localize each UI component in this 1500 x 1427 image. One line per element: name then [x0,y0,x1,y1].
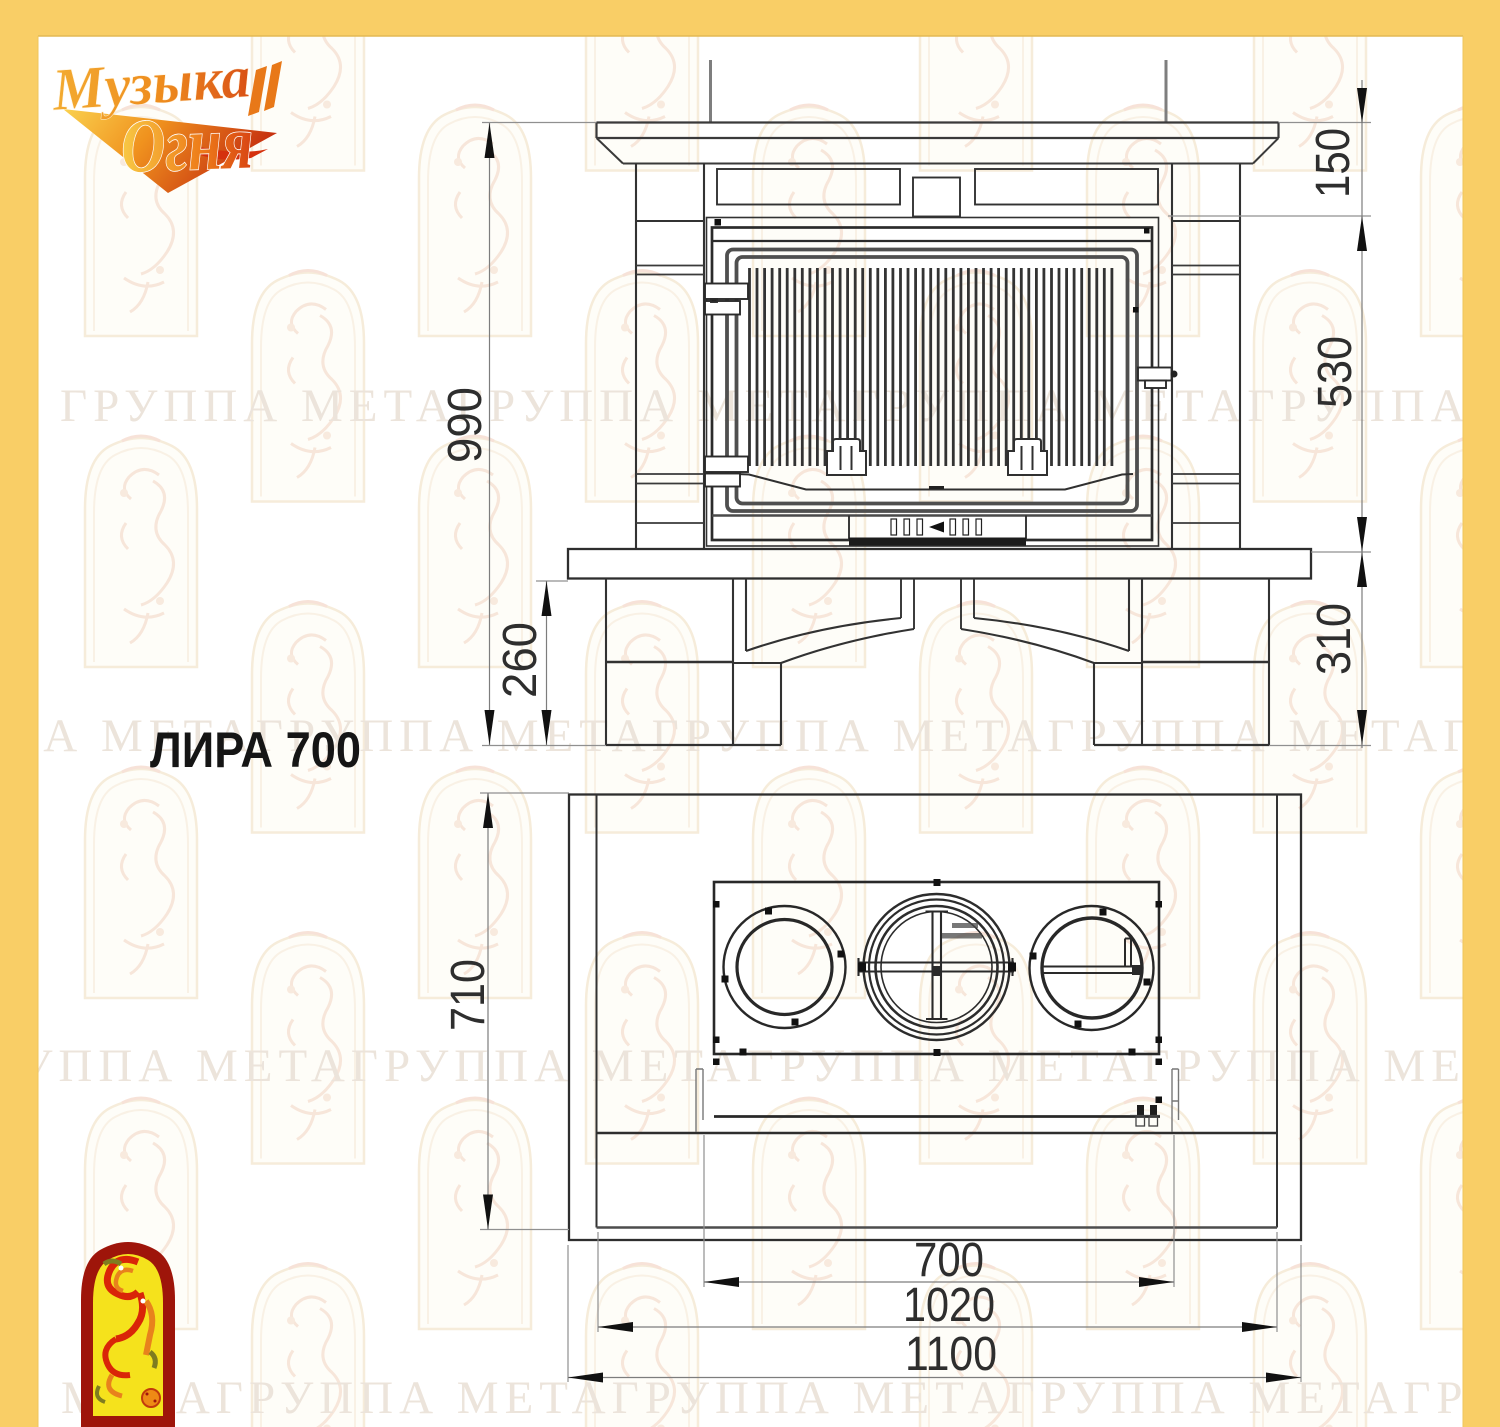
svg-text:Огня: Огня [120,100,255,189]
svg-text:530: 530 [1309,336,1362,408]
svg-text:1020: 1020 [903,1279,995,1332]
svg-text:1100: 1100 [905,1328,997,1381]
svg-text:990: 990 [439,387,492,463]
svg-text:ГРУППА МЕТАГРУППА МЕТАГРУППА М: ГРУППА МЕТАГРУППА МЕТАГРУППА МЕТАГРУППА … [0,1040,1500,1092]
svg-text:260: 260 [494,622,547,698]
svg-text:ЛИРА 700: ЛИРА 700 [150,722,361,778]
svg-text:310: 310 [1308,603,1361,675]
svg-text:710: 710 [442,959,495,1031]
svg-text:150: 150 [1307,128,1360,198]
